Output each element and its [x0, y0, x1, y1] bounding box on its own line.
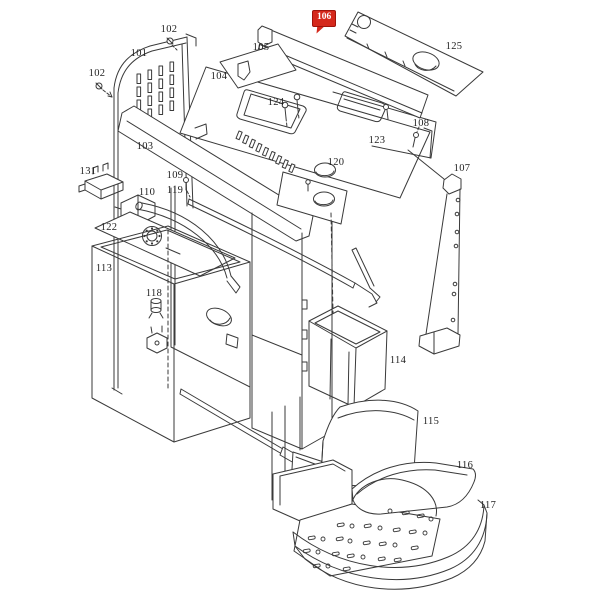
part-label-101[interactable]: 101: [131, 49, 148, 60]
part-label-107[interactable]: 107: [454, 164, 471, 175]
part-label-118[interactable]: 118: [146, 289, 162, 300]
highlighted-part-label-106[interactable]: 106: [312, 10, 336, 27]
part-label-110[interactable]: 110: [139, 188, 155, 199]
part-label-109[interactable]: 109: [167, 171, 184, 182]
part-label-123[interactable]: 123: [369, 136, 386, 147]
part-label-103[interactable]: 103: [137, 142, 154, 153]
part-label-116[interactable]: 116: [457, 461, 473, 472]
part-label-122[interactable]: 122: [101, 223, 118, 234]
part-label-124[interactable]: 124: [268, 98, 285, 109]
part-label-131[interactable]: 131: [80, 167, 97, 178]
part-label-120[interactable]: 120: [328, 158, 345, 169]
part-label-114[interactable]: 114: [390, 356, 406, 367]
part-label-113[interactable]: 113: [96, 264, 112, 275]
part-label-102-left[interactable]: 102: [89, 69, 106, 80]
part-label-105[interactable]: 105: [253, 43, 270, 54]
part-label-117[interactable]: 117: [480, 501, 496, 512]
part-label-108[interactable]: 108: [413, 119, 430, 130]
part-label-115[interactable]: 115: [423, 417, 439, 428]
part-label-119[interactable]: 119: [167, 186, 183, 197]
exploded-parts-diagram: 101 102 102 103 104 105 107 108 109 110 …: [0, 0, 600, 600]
part-label-104[interactable]: 104: [211, 72, 228, 83]
part-label-125[interactable]: 125: [446, 42, 463, 53]
labels-layer: 101 102 102 103 104 105 107 108 109 110 …: [0, 0, 600, 600]
part-label-102-top[interactable]: 102: [161, 25, 178, 36]
